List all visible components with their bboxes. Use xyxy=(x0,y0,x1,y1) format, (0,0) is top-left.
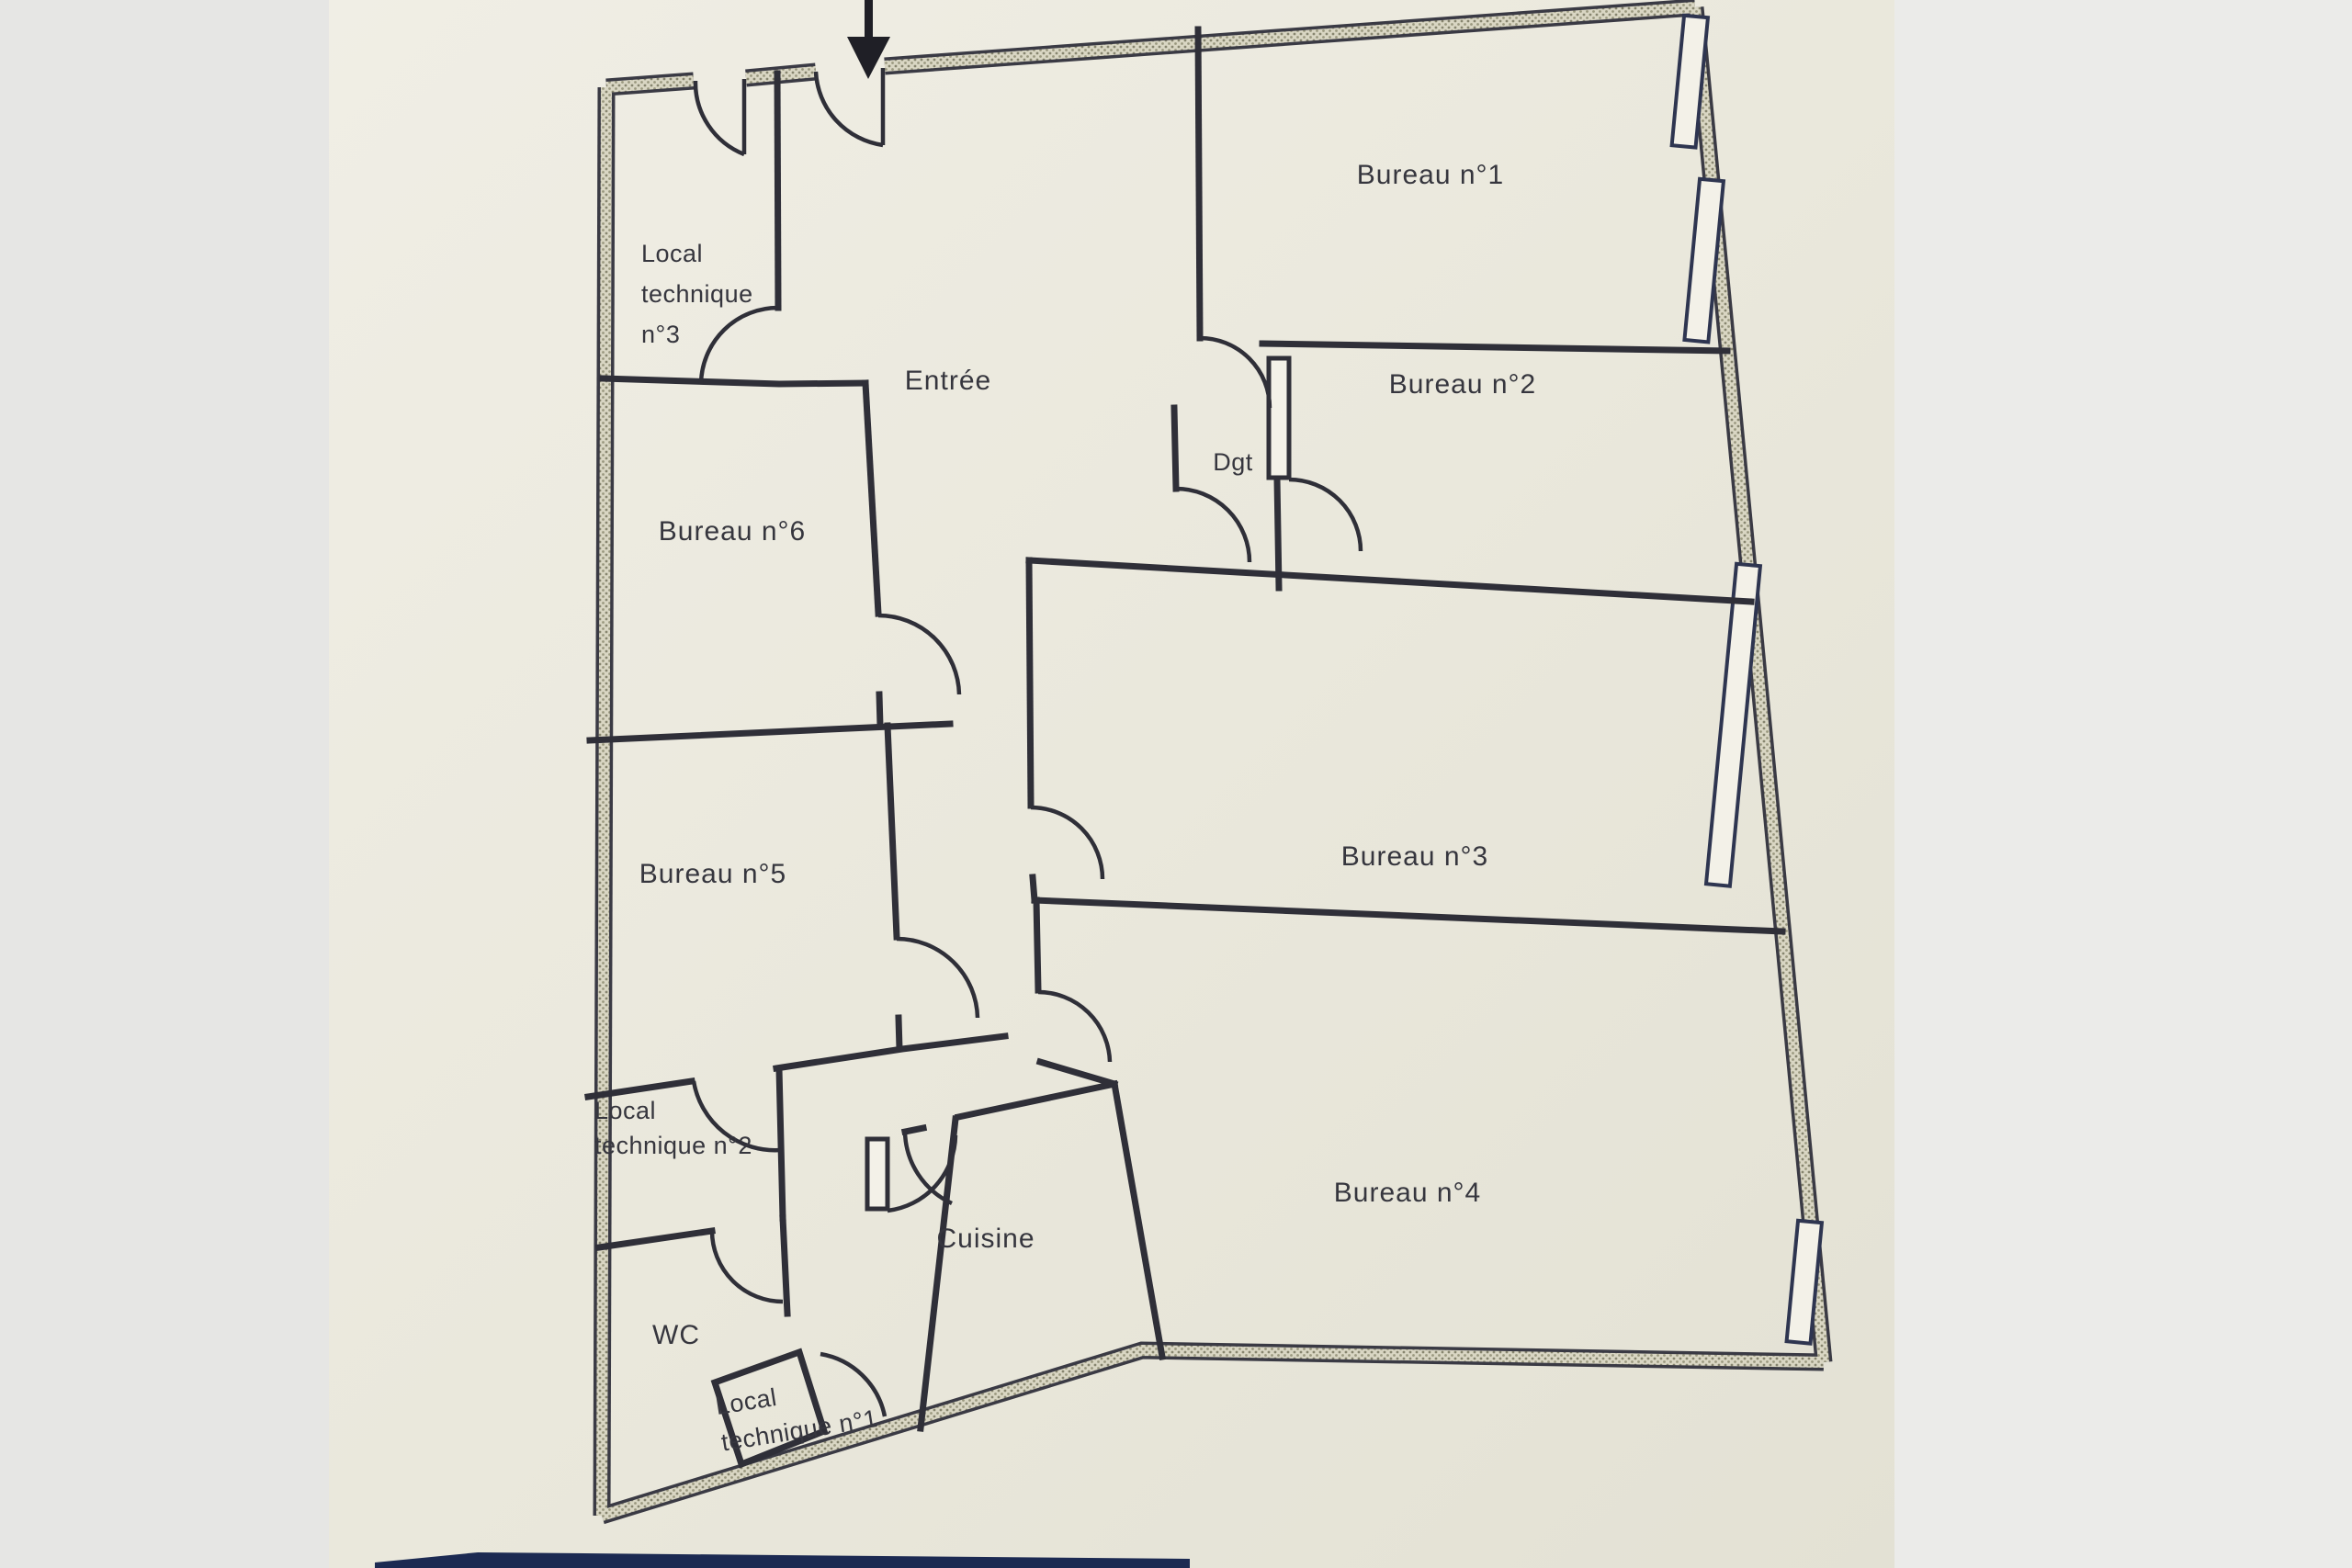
room-label-entree: Entrée xyxy=(905,366,991,396)
room-label-dgt: Dgt xyxy=(1213,448,1253,476)
floor-plan-canvas: Local technique n°3 Entrée Bureau n°1 Bu… xyxy=(0,0,2352,1568)
photo-margin-left xyxy=(0,0,329,1568)
room-label-bureau1: Bureau n°1 xyxy=(1357,160,1504,190)
wall-b3-left-upper xyxy=(1029,560,1031,806)
room-label-wc: WC xyxy=(652,1320,700,1350)
wall-b1-left xyxy=(1198,29,1200,338)
wall-lt2-right xyxy=(779,1069,783,1218)
room-label-cuisine: Cuisine xyxy=(936,1224,1035,1254)
wall-b5-right-stub xyxy=(899,1018,899,1049)
wall-lt3-right xyxy=(777,73,778,308)
paper xyxy=(329,0,1894,1568)
room-label-bureau5: Bureau n°5 xyxy=(639,859,786,889)
room-label-bureau6: Bureau n°6 xyxy=(659,516,806,547)
floor-plan-photo: Local technique n°3 Entrée Bureau n°1 Bu… xyxy=(0,0,2352,1568)
photo-margin-right xyxy=(1894,0,2352,1568)
room-label-bureau3: Bureau n°3 xyxy=(1341,841,1488,872)
wall-wc-right xyxy=(783,1218,787,1314)
wall-b3-left-stub xyxy=(1033,877,1035,900)
wall-cuisine-door-stub xyxy=(905,1128,923,1132)
wall-corridor-east xyxy=(1036,900,1038,990)
wall-dgt-west xyxy=(1174,408,1176,489)
wall-b6-right-stub xyxy=(879,694,880,726)
door-leaf-dgt xyxy=(1269,358,1289,478)
door-leaf-cuisine-corridor xyxy=(867,1139,888,1209)
room-label-bureau4: Bureau n°4 xyxy=(1334,1178,1481,1208)
room-label-bureau2: Bureau n°2 xyxy=(1389,369,1536,400)
